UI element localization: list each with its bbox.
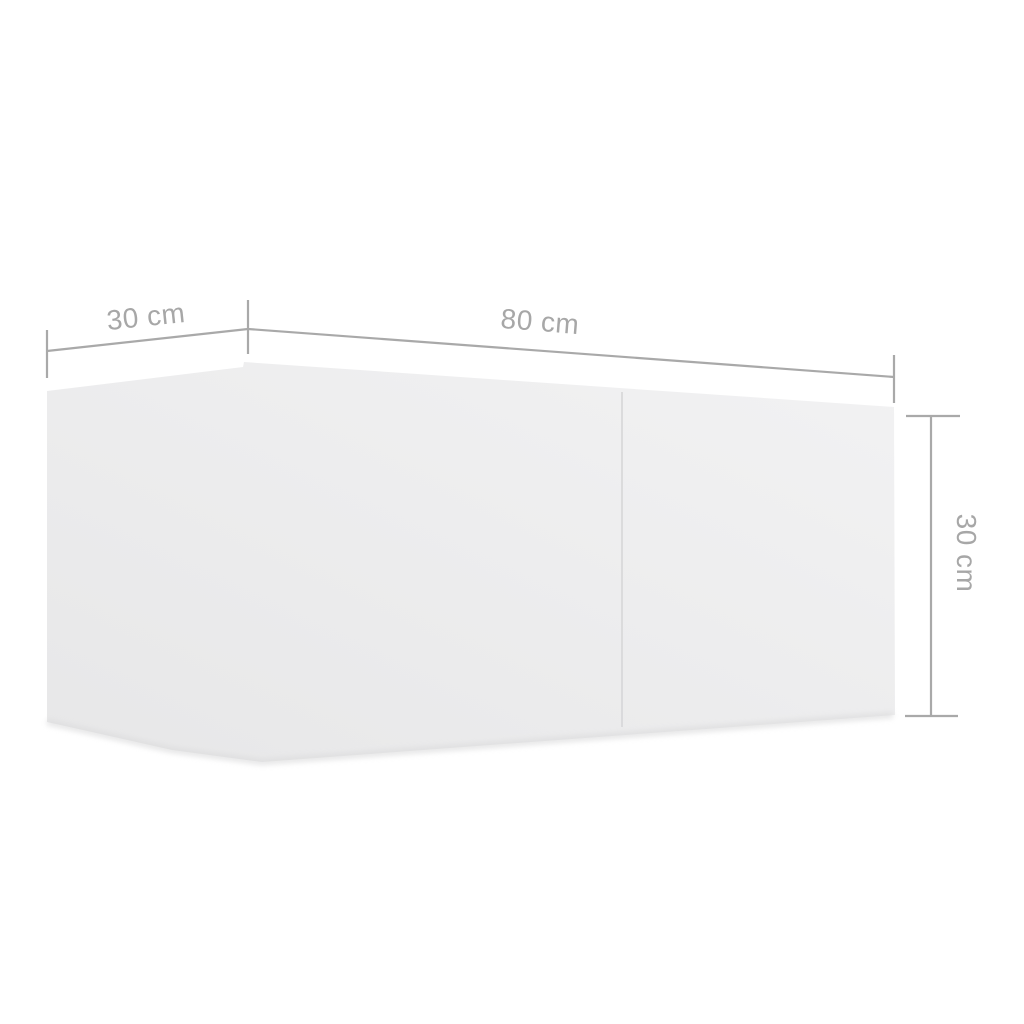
width-dimension-label: 80 cm xyxy=(500,305,581,339)
height-dimension-label: 30 cm xyxy=(952,514,980,593)
cabinet-illustration xyxy=(0,0,1024,1024)
depth-dimension-line xyxy=(47,329,248,351)
product-dimension-diagram: 30 cm 80 cm 30 cm xyxy=(0,0,1024,1024)
cabinet-body xyxy=(47,362,895,762)
